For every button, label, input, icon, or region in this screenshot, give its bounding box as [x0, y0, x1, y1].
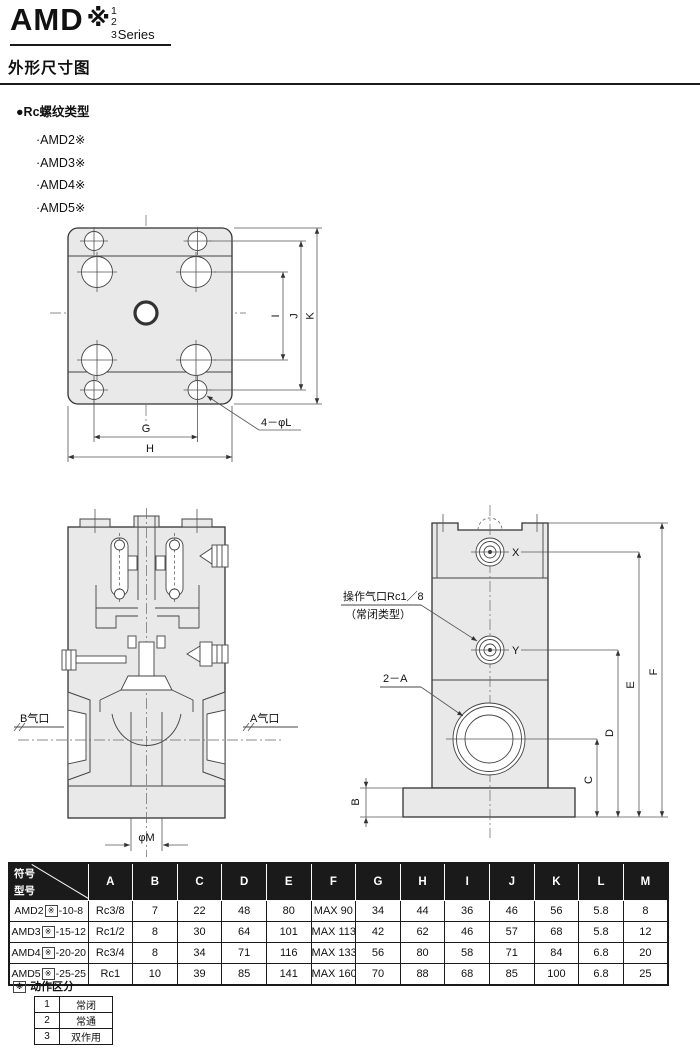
value-cell: 25 [623, 964, 668, 986]
dim-F: F [648, 523, 662, 817]
svg-text:操作气口Rc1／8: 操作气口Rc1／8 [343, 589, 424, 603]
corner-label-symbol: 符号 [14, 866, 35, 881]
value-cell: 10 [133, 964, 178, 986]
col-header: M [623, 863, 668, 901]
brand-variant-stack: 1 2 3 Series [111, 6, 155, 41]
svg-text:2－A: 2－A [383, 673, 408, 685]
value-cell: Rc3/8 [88, 901, 133, 922]
dimensions-table: 符号 型号 A B C D E F G H I J K L M AM [8, 862, 669, 986]
value-cell: 6.8 [579, 964, 624, 986]
col-header: L [579, 863, 624, 901]
svg-text:X: X [512, 547, 520, 559]
table-header-row: 符号 型号 A B C D E F G H I J K L M [9, 863, 668, 901]
value-cell: 85 [489, 964, 534, 986]
value-cell: 46 [489, 901, 534, 922]
value-cell: 80 [400, 943, 445, 964]
port-a-callout: A气口 [243, 711, 298, 731]
svg-text:B: B [350, 798, 362, 805]
value-cell: 71 [489, 943, 534, 964]
legend-label: 常闭 [60, 997, 113, 1013]
legend-code: 3 [35, 1029, 60, 1045]
svg-text:I: I [270, 314, 282, 317]
brand-logo: AMD ※ 1 2 3 Series [10, 5, 171, 46]
col-header: G [356, 863, 401, 901]
svg-text:（常闭类型）: （常闭类型） [345, 607, 411, 621]
model-cell: AMD4※-20-20 [9, 943, 88, 964]
model-list-item: ·AMD3※ [36, 152, 85, 175]
col-header: A [88, 863, 133, 901]
value-cell: 62 [400, 922, 445, 943]
pilot-port-x: X [471, 538, 639, 566]
page-title: 外形尺寸图 [8, 56, 91, 78]
value-cell: 46 [445, 922, 490, 943]
svg-text:J: J [289, 313, 301, 319]
col-header: K [534, 863, 579, 901]
col-header: I [445, 863, 490, 901]
dimension-drawings: I J K G H 4－φL [0, 210, 700, 862]
legend-row: 2 常通 [35, 1013, 113, 1029]
legend-title: ※ 动作区分 [12, 978, 113, 994]
value-cell: 34 [177, 943, 222, 964]
value-cell: 56 [356, 943, 401, 964]
col-header: D [222, 863, 267, 901]
value-cell: 34 [356, 901, 401, 922]
value-cell: 68 [445, 964, 490, 986]
side-view-drawing: X Y 操作气口Rc1／8 （常闭类型） 2－A [341, 505, 668, 838]
legend-code: 2 [35, 1013, 60, 1029]
value-cell: 56 [534, 901, 579, 922]
col-header: E [266, 863, 311, 901]
value-cell: 101 [266, 922, 311, 943]
model-list: ·AMD2※ ·AMD3※ ·AMD4※ ·AMD5※ [36, 129, 85, 219]
table-row: AMD3※-15-12 Rc1/2 8 30 64 101 MAX 113 42… [9, 922, 668, 943]
value-cell: MAX 133 [311, 943, 356, 964]
value-cell: Rc3/4 [88, 943, 133, 964]
value-cell: 71 [222, 943, 267, 964]
value-cell: 84 [534, 943, 579, 964]
dim-E: E [625, 552, 639, 817]
model-list-item: ·AMD2※ [36, 129, 85, 152]
value-cell: 5.8 [579, 901, 624, 922]
svg-text:B气口: B气口 [20, 711, 49, 725]
svg-text:φM: φM [138, 832, 154, 844]
value-cell: 8 [133, 943, 178, 964]
value-cell: MAX 90 [311, 901, 356, 922]
legend-row: 3 双作用 [35, 1029, 113, 1045]
svg-text:H: H [146, 443, 154, 455]
value-cell: 141 [266, 964, 311, 986]
svg-text:A气口: A气口 [250, 711, 279, 725]
reference-mark-icon: ※ [87, 5, 110, 34]
value-cell: 5.8 [579, 922, 624, 943]
corner-label-model: 型号 [14, 883, 35, 898]
svg-text:E: E [625, 681, 637, 688]
dim-D: D [604, 650, 618, 817]
value-cell: 42 [356, 922, 401, 943]
model-cell: AMD3※-15-12 [9, 922, 88, 943]
legend-row: 1 常闭 [35, 997, 113, 1013]
svg-text:C: C [583, 776, 595, 784]
center-hole [135, 302, 157, 324]
value-cell: 20 [623, 943, 668, 964]
action-code-box: ※ [42, 926, 55, 938]
value-cell: 8 [623, 901, 668, 922]
svg-text:K: K [305, 312, 317, 320]
variant-3: 3 [111, 30, 117, 41]
svg-text:Y: Y [512, 645, 520, 657]
value-cell: 12 [623, 922, 668, 943]
svg-text:F: F [648, 668, 660, 675]
value-cell: 7 [133, 901, 178, 922]
value-cell: 58 [445, 943, 490, 964]
value-cell: 48 [222, 901, 267, 922]
svg-text:4－φL: 4－φL [261, 417, 291, 429]
action-legend: ※ 动作区分 1 常闭 2 常通 3 双作用 [12, 978, 113, 1045]
value-cell: 57 [489, 922, 534, 943]
variant-1: 1 [111, 6, 155, 17]
legend-label: 双作用 [60, 1029, 113, 1045]
model-list-item: ·AMD4※ [36, 174, 85, 197]
value-cell: 100 [534, 964, 579, 986]
svg-text:D: D [604, 729, 616, 737]
brand-title: AMD [10, 5, 84, 34]
value-cell: 36 [445, 901, 490, 922]
value-cell: 85 [222, 964, 267, 986]
port-b-callout: B气口 [14, 711, 64, 731]
action-code-box: ※ [45, 905, 58, 917]
col-header: C [177, 863, 222, 901]
value-cell: 30 [177, 922, 222, 943]
table-row: AMD2※-10-8 Rc3/8 7 22 48 80 MAX 90 34 44… [9, 901, 668, 922]
value-cell: 64 [222, 922, 267, 943]
value-cell: 39 [177, 964, 222, 986]
value-cell: 68 [534, 922, 579, 943]
col-header: B [133, 863, 178, 901]
value-cell: 88 [400, 964, 445, 986]
value-cell: 6.8 [579, 943, 624, 964]
value-cell: 80 [266, 901, 311, 922]
model-cell: AMD2※-10-8 [9, 901, 88, 922]
legend-label: 常通 [60, 1013, 113, 1029]
svg-text:G: G [142, 423, 151, 435]
value-cell: 116 [266, 943, 311, 964]
value-cell: 8 [133, 922, 178, 943]
corner-diagonal [31, 864, 88, 900]
action-code-box: ※ [42, 947, 55, 959]
value-cell: 70 [356, 964, 401, 986]
value-cell: Rc1/2 [88, 922, 133, 943]
value-cell: MAX 113 [311, 922, 356, 943]
col-header: H [400, 863, 445, 901]
table-corner-cell: 符号 型号 [9, 863, 88, 901]
top-view-drawing: I J K G H 4－φL [50, 215, 322, 462]
dim-C: C [583, 739, 597, 817]
dim-B: B [350, 778, 403, 827]
value-cell: 22 [177, 901, 222, 922]
col-header: J [489, 863, 534, 901]
table-row: AMD4※-20-20 Rc3/4 8 34 71 116 MAX 133 56… [9, 943, 668, 964]
col-header: F [311, 863, 356, 901]
section-view-drawing: B气口 A气口 φM [14, 508, 298, 857]
brand-series: Series [118, 28, 155, 41]
title-rule [0, 83, 700, 85]
thread-type-heading: ●Rc螺纹类型 [16, 101, 90, 120]
value-cell: 44 [400, 901, 445, 922]
legend-code: 1 [35, 997, 60, 1013]
reference-mark-box: ※ [13, 981, 26, 993]
value-cell: MAX 160 [311, 964, 356, 986]
